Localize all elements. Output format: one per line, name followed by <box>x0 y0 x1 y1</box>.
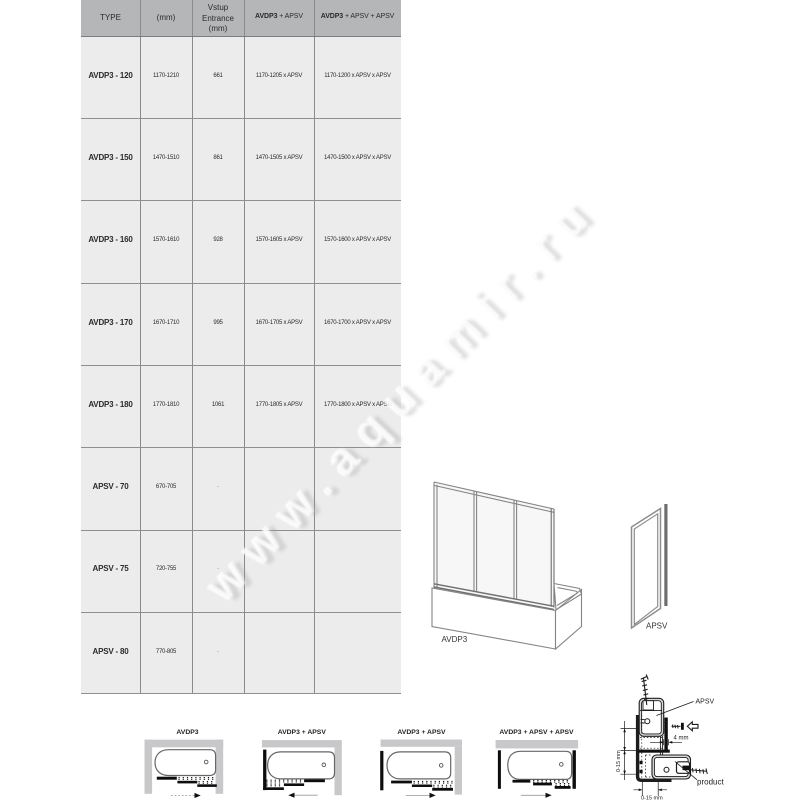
svg-text:0-15 mm: 0-15 mm <box>641 796 663 800</box>
svg-text:4 mm: 4 mm <box>674 736 689 742</box>
svg-text:APSV: APSV <box>646 622 668 631</box>
svg-text:APSV: APSV <box>696 699 715 706</box>
svg-text:0-15 mm: 0-15 mm <box>616 750 622 772</box>
svg-text:AVDP3: AVDP3 <box>442 635 468 644</box>
svg-text:AVDP3 + APSV + APSV: AVDP3 + APSV + APSV <box>499 729 574 736</box>
svg-text:AVDP3 + APSV: AVDP3 + APSV <box>397 729 446 736</box>
svg-text:AVDP3 + APSV: AVDP3 + APSV <box>278 729 327 736</box>
svg-text:product: product <box>697 778 724 787</box>
svg-text:AVDP3: AVDP3 <box>176 729 198 736</box>
